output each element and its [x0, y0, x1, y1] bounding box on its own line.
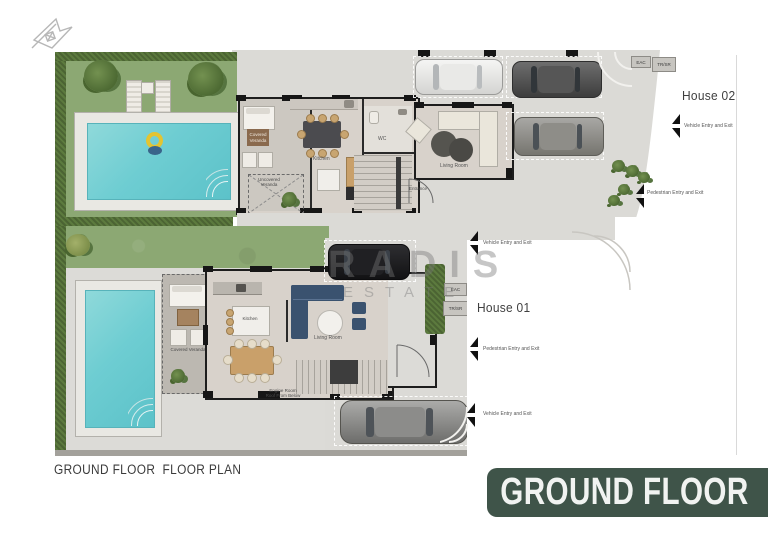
wall: [362, 152, 414, 154]
entry-arrow-marker: [469, 336, 479, 362]
side-table: [141, 82, 154, 94]
daybed-pillow: [172, 286, 202, 292]
entry-arrow-marker: [635, 183, 645, 209]
car-windshield: [366, 407, 374, 437]
dining-chair: [234, 339, 244, 349]
house02-hedge-left: [55, 52, 66, 217]
pool-steps: [128, 398, 153, 426]
dining-chair: [234, 373, 244, 383]
room-label: Kitchen: [313, 156, 330, 162]
car-windshield: [433, 64, 439, 90]
step-arc: [128, 398, 153, 426]
eac-label: EAC: [636, 60, 645, 65]
bush: [638, 172, 650, 183]
dining-chair: [330, 114, 339, 123]
entry-label: Pedestrian Entry and Exit: [647, 190, 703, 196]
wall-pier: [203, 325, 208, 345]
entry-label: Vehicle Entry and Exit: [483, 411, 532, 417]
watermark-line2: ESTATE: [343, 284, 465, 301]
watermark-line1: RADIS: [328, 244, 511, 287]
sofa-navy: [291, 285, 308, 339]
floor-plan-sheet: Covered Veranda Uncovered Veranda Kitche…: [0, 0, 768, 541]
sun-lounger: [126, 80, 142, 114]
stair-rail: [396, 157, 401, 209]
lounge-chair: [242, 152, 257, 168]
bush: [626, 165, 639, 177]
wall-pier: [203, 391, 213, 398]
room-label: Kitchen: [237, 316, 263, 321]
dining-chair: [330, 149, 339, 158]
house01-name: House 01: [477, 300, 530, 315]
ground-floor-banner-label: GROUND FLOOR: [487, 471, 749, 514]
house02-covered-veranda-label-box: Covered Veranda: [247, 129, 269, 146]
house02-staircase: [354, 155, 412, 211]
dining-chair: [260, 339, 270, 349]
wall-pier: [430, 335, 436, 345]
room-label: Entrance: [404, 186, 432, 191]
dining-chair: [247, 339, 257, 349]
bar-stool: [226, 327, 234, 335]
dining-chair: [306, 114, 315, 123]
kitchen-hob: [236, 284, 246, 292]
kitchen-island: [317, 169, 340, 191]
ottoman-navy: [352, 318, 366, 330]
house02-hedge-top: [55, 52, 237, 61]
tree: [188, 62, 224, 96]
coffee-table-round: [317, 310, 343, 336]
room-label: Uncovered Veranda: [251, 177, 287, 187]
wall-pier: [236, 95, 246, 101]
pool-steps: [206, 168, 228, 197]
car-rear-glass: [426, 408, 433, 436]
wc-sink: [398, 109, 407, 115]
entry-arrow-marker: [466, 402, 476, 428]
house02-name: House 02: [682, 88, 735, 103]
bar-stool: [226, 309, 234, 317]
dining-chair: [318, 114, 327, 123]
house01-hedge-left: [55, 226, 66, 452]
lounge-chair: [258, 152, 273, 168]
room-label: Engine Room Roof From Below: [254, 388, 312, 398]
step-arc: [206, 169, 228, 197]
coffee-table: [177, 309, 199, 326]
bar-stool: [226, 318, 234, 326]
wall-pier: [250, 266, 272, 272]
trsr-label: TR/SR: [657, 62, 671, 67]
dining-table: [230, 346, 274, 375]
dining-chair: [260, 373, 270, 383]
entry-label: Vehicle Entry and Exit: [684, 123, 733, 129]
daybed-pillow: [246, 108, 270, 114]
entry-arrow-marker: [671, 113, 681, 139]
car-roof: [375, 407, 425, 437]
sofa-cushion-line: [293, 299, 342, 300]
bush: [618, 184, 630, 195]
room-label: Covered Veranda: [249, 132, 266, 142]
house02-trsr-box: TR/SR: [652, 57, 676, 72]
wall-pier: [203, 266, 213, 272]
dining-chair: [272, 355, 282, 365]
ottoman-navy: [352, 302, 366, 314]
entry-label: Pedestrian Entry and Exit: [483, 346, 539, 352]
dining-chair: [247, 373, 257, 383]
lounge-chair: [170, 329, 187, 346]
wall-pier: [414, 102, 424, 108]
entry-door-arc: [396, 344, 430, 378]
dining-chair: [223, 355, 233, 365]
potted-plant: [171, 369, 185, 383]
tree: [84, 60, 118, 92]
tree: [66, 234, 90, 256]
dining-table: [303, 121, 341, 148]
ground-floor-banner: GROUND FLOOR: [487, 468, 768, 517]
plan-bottom-curb: [55, 450, 467, 456]
bush: [612, 160, 625, 172]
house02-uncovered-veranda: Uncovered Veranda: [248, 174, 304, 214]
sun-lounger: [155, 80, 171, 114]
dining-chair: [340, 130, 349, 139]
room-label: Living Room: [314, 335, 342, 341]
bush: [608, 195, 620, 206]
house02-eac-box: EAC: [631, 56, 651, 68]
stair-corridor: [330, 360, 358, 384]
kitchen-sink: [344, 100, 354, 108]
sheet-title: GROUND FLOOR FLOOR PLAN: [54, 462, 241, 477]
north-compass-icon: [26, 10, 78, 54]
wc-toilet: [369, 111, 379, 124]
wall: [286, 300, 288, 342]
dining-chair: [297, 130, 306, 139]
room-label: WC: [378, 136, 386, 142]
sheet-border-line: [736, 55, 737, 455]
potted-plant: [282, 192, 297, 207]
pool-float-donut: [148, 146, 162, 155]
